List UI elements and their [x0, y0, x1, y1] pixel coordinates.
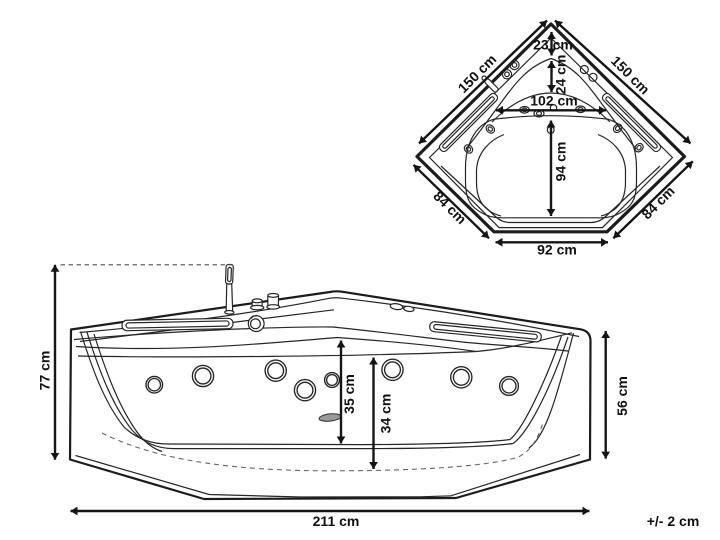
svg-text:56 cm: 56 cm: [614, 376, 630, 416]
svg-text:84 cm: 84 cm: [430, 188, 469, 227]
svg-text:102 cm: 102 cm: [530, 92, 577, 108]
svg-text:24 cm: 24 cm: [553, 55, 569, 95]
svg-text:77 cm: 77 cm: [37, 351, 53, 391]
svg-text:84 cm: 84 cm: [638, 183, 677, 222]
svg-text:34 cm: 34 cm: [378, 394, 394, 434]
svg-text:23 cm: 23 cm: [533, 37, 573, 53]
svg-text:94 cm: 94 cm: [553, 142, 569, 182]
svg-text:92 cm: 92 cm: [537, 242, 577, 258]
svg-text:+/- 2 cm: +/- 2 cm: [647, 513, 700, 529]
svg-text:211 cm: 211 cm: [313, 513, 360, 529]
svg-text:35 cm: 35 cm: [341, 374, 357, 414]
